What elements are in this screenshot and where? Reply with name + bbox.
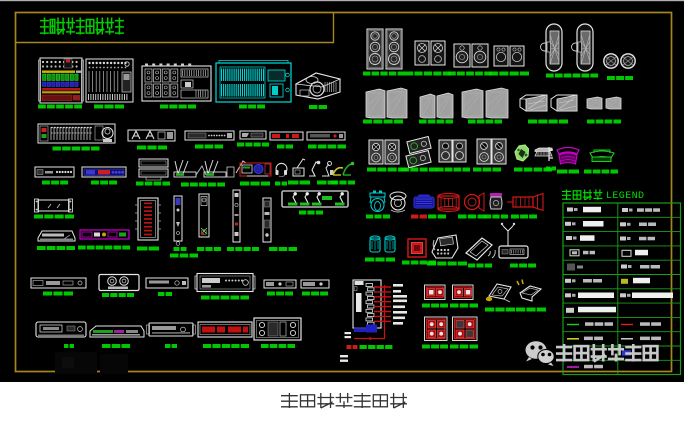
svg-text:LEGEND: LEGEND	[606, 191, 644, 202]
